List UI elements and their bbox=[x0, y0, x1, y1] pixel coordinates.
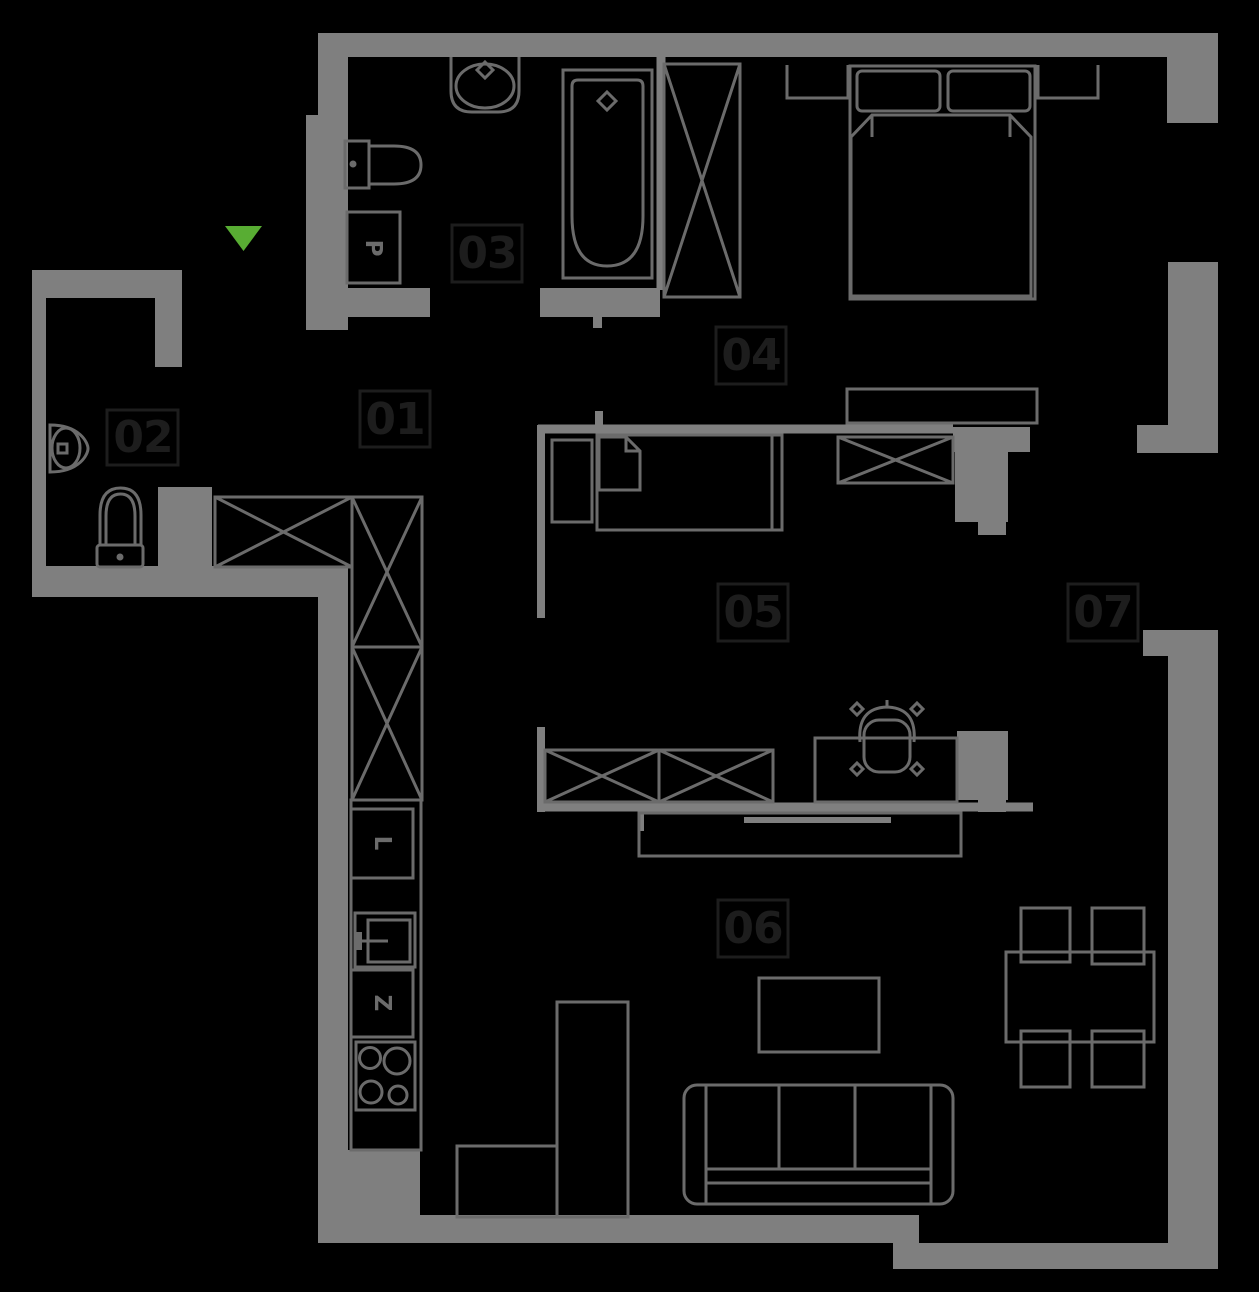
wc-sink bbox=[50, 425, 88, 472]
wall-kitchen-corner bbox=[318, 1150, 420, 1243]
room-label-text: 06 bbox=[723, 903, 782, 954]
wc-toilet-button bbox=[117, 554, 124, 561]
room-label-text: 01 bbox=[365, 394, 424, 445]
kitchen-dishwasher: Z bbox=[351, 970, 413, 1037]
door-jamb-bathroom bbox=[593, 317, 602, 328]
walls bbox=[32, 33, 1218, 1269]
room-label-07: 07 bbox=[1068, 584, 1138, 641]
bedroom04-shelf bbox=[847, 389, 1037, 423]
bathtub bbox=[563, 70, 652, 278]
bathroom-toilet bbox=[345, 141, 421, 188]
room-label-03: 03 bbox=[452, 225, 522, 282]
room-label-05: 05 bbox=[718, 584, 788, 641]
livingroom-furniture bbox=[457, 813, 1154, 1217]
dining-chair bbox=[1092, 908, 1144, 964]
toilet-button bbox=[350, 161, 357, 168]
wall-wc-top bbox=[32, 270, 182, 298]
room-label-text: 07 bbox=[1073, 587, 1132, 638]
sink-basin bbox=[456, 64, 514, 108]
burner-icon bbox=[389, 1086, 407, 1104]
bedroom04-wardrobe bbox=[664, 64, 740, 297]
room05-dresser bbox=[545, 750, 773, 802]
chair-foot-icon bbox=[851, 763, 863, 775]
floor-plan-canvas: P L bbox=[0, 0, 1259, 1292]
hall-wardrobe-vertical bbox=[352, 497, 422, 800]
nightstand-right bbox=[1038, 65, 1098, 98]
wc-sink-tap bbox=[58, 444, 67, 453]
room-label-06: 06 bbox=[718, 900, 788, 957]
wall-kitchen bbox=[318, 597, 348, 1150]
room-label-text: 05 bbox=[723, 587, 782, 638]
dishwasher-letter: Z bbox=[369, 995, 395, 1012]
sofa bbox=[684, 1085, 953, 1204]
chair-foot-icon bbox=[911, 763, 923, 775]
wall-right-mid bbox=[1137, 262, 1218, 453]
bed05-pillow bbox=[599, 437, 640, 490]
room-label-text: 02 bbox=[113, 412, 172, 463]
wall-wc-left bbox=[32, 270, 46, 597]
toilet-tank bbox=[345, 141, 369, 188]
chair-foot-icon bbox=[911, 703, 923, 715]
bed-pillow bbox=[948, 71, 1030, 111]
entrance-arrow-icon bbox=[225, 226, 262, 251]
kitchen-stove bbox=[356, 1042, 415, 1110]
wall-right-lower bbox=[1143, 630, 1218, 1243]
washing-machine: P bbox=[347, 212, 400, 283]
nightstand-05 bbox=[552, 440, 592, 522]
wc-toilet-bowl-inner bbox=[106, 494, 135, 545]
bed-duvet-fold bbox=[872, 115, 1010, 137]
floor-plan-page: P L bbox=[0, 0, 1259, 1292]
dining-chair bbox=[1092, 1031, 1144, 1087]
dining-chair bbox=[1021, 908, 1070, 962]
room-label-text: 03 bbox=[457, 228, 516, 279]
wall-top bbox=[318, 33, 1218, 123]
bathtub-drain-icon bbox=[598, 92, 616, 110]
kitchen-sink-tap bbox=[355, 932, 362, 950]
hall-wardrobe-horizontal bbox=[215, 497, 352, 567]
fridge-letter: L bbox=[369, 836, 395, 851]
bed-pillow bbox=[857, 71, 940, 111]
burner-icon bbox=[360, 1081, 382, 1103]
room-label-01: 01 bbox=[360, 391, 430, 447]
washing-machine-letter: P bbox=[360, 240, 386, 257]
single-bed bbox=[597, 435, 782, 530]
wall-hall-pillar bbox=[158, 487, 212, 567]
room-label-text: 04 bbox=[721, 330, 780, 381]
room-label-02: 02 bbox=[107, 410, 178, 465]
door-jamb-hall bbox=[595, 411, 603, 429]
kitchen-fridge: L bbox=[351, 809, 413, 878]
kitchen-sink bbox=[355, 913, 415, 967]
wall-bathroom-bottom-right bbox=[540, 288, 660, 317]
burner-icon bbox=[360, 1048, 381, 1069]
bathroom-sink bbox=[451, 57, 519, 112]
desk bbox=[815, 738, 957, 802]
burner-icon bbox=[384, 1048, 410, 1074]
cabinet-low bbox=[457, 1146, 557, 1217]
wc-toilet bbox=[97, 488, 143, 567]
wall-hall-bottom bbox=[32, 566, 348, 597]
chair-foot-icon bbox=[851, 703, 863, 715]
room05-wardrobe bbox=[838, 437, 953, 483]
wall-bottom bbox=[420, 1215, 919, 1243]
chair-seat bbox=[864, 720, 910, 772]
room-label-04: 04 bbox=[716, 327, 786, 384]
cabinet-tall bbox=[557, 1002, 628, 1217]
double-bed bbox=[850, 66, 1035, 299]
toilet-bowl bbox=[369, 146, 421, 184]
pillar-bedroom bbox=[953, 427, 1030, 535]
wall-bottom-right bbox=[893, 1243, 1218, 1269]
pillar-livingroom bbox=[957, 731, 1008, 812]
nightstand-left bbox=[787, 65, 848, 98]
coffee-table bbox=[759, 978, 879, 1052]
wall-wc-jamb bbox=[155, 298, 182, 367]
dining-chair bbox=[1021, 1031, 1070, 1087]
bed-duvet bbox=[851, 115, 1031, 296]
